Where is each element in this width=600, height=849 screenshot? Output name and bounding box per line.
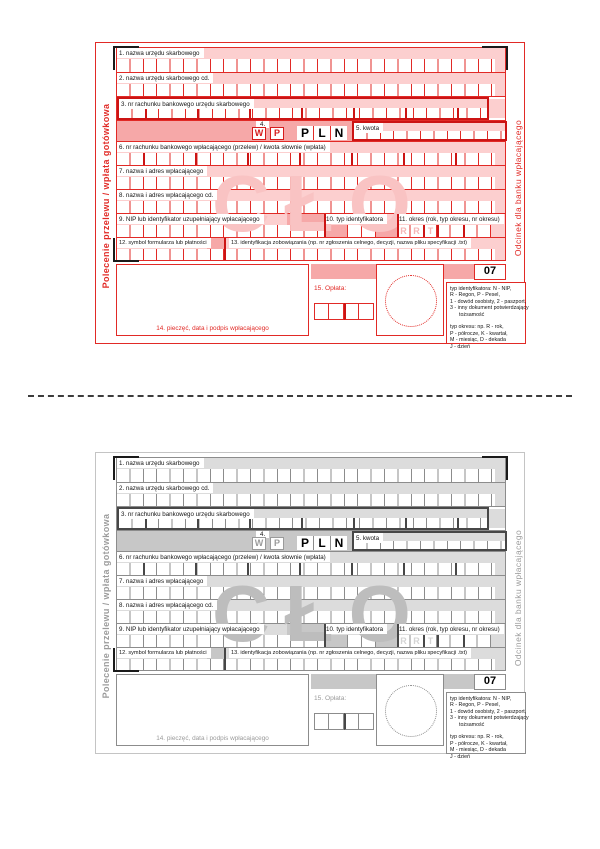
field-label: 11. okres (rok, typ okresu, nr okresu) xyxy=(397,214,504,224)
field-amount-box: 5. kwota xyxy=(352,531,507,551)
character-cells xyxy=(117,177,505,189)
period-hint-t: T xyxy=(424,226,437,236)
field-label: 10. typ identyfikatora xyxy=(324,214,387,224)
character-cells xyxy=(117,59,505,72)
character-cells xyxy=(117,587,505,599)
bank-stamp-box xyxy=(376,674,444,746)
transfer-type-box-p: P xyxy=(270,537,284,550)
field-label: 13. identyfikacja zobowiązania (np. nr z… xyxy=(229,238,471,248)
character-cells: R R T xyxy=(397,225,505,237)
form-type-vertical-label: Polecenie przelewu / wpłata gotówkowa xyxy=(101,506,111,706)
field-row-form-symbol-and-liability: 12. symbol formularza lub płatności 13. … xyxy=(117,647,505,670)
field-label: 2. nazwa urzędu skarbowego cd. xyxy=(117,483,213,493)
period-hint-r2: R xyxy=(410,226,423,236)
character-cells xyxy=(117,201,505,213)
character-cells xyxy=(117,563,505,575)
bank-stamp-box xyxy=(376,264,444,336)
form-variant-badge: 07 xyxy=(474,264,506,280)
field-row-transfer-type-and-amount: 4. W P PLN 5. kwota xyxy=(117,120,505,141)
character-cells xyxy=(117,494,505,506)
stamp-date-signature-box: 14. pieczęć, data i podpis wpłacającego xyxy=(116,674,309,746)
fee-cells xyxy=(314,713,374,730)
field-label: 6. nr rachunku bankowego wpłacającego (p… xyxy=(117,552,330,562)
field-row-payer-name-address-cont: 8. nazwa i adres wpłacającego cd. xyxy=(117,599,505,623)
page: { "form": { "side_left": "Polecenie prze… xyxy=(0,0,600,849)
field-row-payer-name-address: 7. nazwa i adres wpłacającego xyxy=(117,165,505,189)
character-cells xyxy=(119,518,487,528)
field-row-payer-account-or-amount-words: 6. nr rachunku bankowego wpłacającego (p… xyxy=(117,551,505,575)
character-cells xyxy=(117,84,505,96)
bank-copy-vertical-label: Odcinek dla banku wpłacającego xyxy=(513,498,523,698)
character-cells xyxy=(117,611,505,623)
field-label: 9. NIP lub identyfikator uzupełniający w… xyxy=(117,214,264,224)
stamp-circle xyxy=(385,685,437,737)
character-cells xyxy=(117,469,505,482)
corner-mark-top-left xyxy=(113,456,139,480)
field-label: 3. nr rachunku bankowego urzędu skarbowe… xyxy=(119,509,254,519)
character-cells xyxy=(117,153,505,165)
character-cells xyxy=(117,249,505,260)
corner-mark-top-left xyxy=(113,46,139,70)
field-row-tax-office-name: 1. nazwa urzędu skarbowego xyxy=(117,458,505,482)
field-label: 8. nazwa i adres wpłacającego cd. xyxy=(117,190,217,200)
perforation-line xyxy=(28,395,572,397)
field-label: 3. nr rachunku bankowego urzędu skarbowe… xyxy=(119,99,254,109)
field-period: 11. okres (rok, typ okresu, nr okresu) R… xyxy=(397,624,505,647)
legend-box: typ identyfikatora: N - NIP, R - Regon, … xyxy=(446,692,526,754)
transfer-type-box-p: P xyxy=(270,127,284,140)
field-label: 2. nazwa urzędu skarbowego cd. xyxy=(117,73,213,83)
currency-code: PLN xyxy=(297,126,347,140)
field-nip: 9. NIP lub identyfikator uzupełniający w… xyxy=(117,214,324,237)
field-id-type: 10. typ identyfikatora xyxy=(324,624,397,647)
field-row-transfer-type-and-amount: 4. W P PLN 5. kwota xyxy=(117,530,505,551)
character-cells xyxy=(324,635,397,647)
field-row-tax-office-account: 3. nr rachunku bankowego urzędu skarbowe… xyxy=(117,506,505,530)
transfer-type-box-w: W xyxy=(252,537,266,550)
fee-label: 15. Opłata: xyxy=(314,695,346,702)
field-row-nip-idtype-period: 9. NIP lub identyfikator uzupełniający w… xyxy=(117,213,505,237)
field-label: 14. pieczęć, data i podpis wpłacającego xyxy=(117,735,308,742)
field-amount-box: 5. kwota xyxy=(352,121,507,141)
currency-code: PLN xyxy=(297,536,347,550)
character-cells xyxy=(117,659,505,670)
corner-mark-bottom-left xyxy=(113,238,139,262)
stamp-circle xyxy=(385,275,437,327)
corner-mark-top-right xyxy=(482,456,508,480)
field-label: 5. kwota xyxy=(354,533,383,543)
fee-cells xyxy=(314,303,374,320)
character-cells xyxy=(117,225,324,237)
field-nip: 9. NIP lub identyfikator uzupełniający w… xyxy=(117,624,324,647)
stamp-date-signature-box: 14. pieczęć, data i podpis wpłacającego xyxy=(116,264,309,336)
field-row-tax-office-name-cont: 2. nazwa urzędu skarbowego cd. xyxy=(117,72,505,96)
transfer-type-box-w: W xyxy=(252,127,266,140)
customs-payment-form-red-copy: Polecenie przelewu / wpłata gotówkowa Od… xyxy=(95,42,525,344)
form-grid: 1. nazwa urzędu skarbowego 2. nazwa urzę… xyxy=(116,47,506,261)
field-row-payer-account-or-amount-words: 6. nr rachunku bankowego wpłacającego (p… xyxy=(117,141,505,165)
character-cells xyxy=(117,635,324,647)
field-label: 9. NIP lub identyfikator uzupełniający w… xyxy=(117,624,264,634)
field-label: 14. pieczęć, data i podpis wpłacającego xyxy=(117,325,308,332)
form-type-vertical-label: Polecenie przelewu / wpłata gotówkowa xyxy=(101,96,111,296)
field-row-tax-office-name: 1. nazwa urzędu skarbowego xyxy=(117,48,505,72)
field-label: 13. identyfikacja zobowiązania (np. nr z… xyxy=(229,648,471,658)
character-cells: R R T xyxy=(397,635,505,647)
form-grid: 1. nazwa urzędu skarbowego 2. nazwa urzę… xyxy=(116,457,506,671)
field-label: 7. nazwa i adres wpłacającego xyxy=(117,576,207,586)
customs-payment-form-gray-copy: Polecenie przelewu / wpłata gotówkowa Od… xyxy=(95,452,525,754)
field-row-tax-office-account: 3. nr rachunku bankowego urzędu skarbowe… xyxy=(117,96,505,120)
form-variant-badge: 07 xyxy=(474,674,506,690)
field-label: 10. typ identyfikatora xyxy=(324,624,387,634)
period-hint-r2: R xyxy=(410,636,423,646)
corner-mark-bottom-left xyxy=(113,648,139,672)
field-row-payer-name-address: 7. nazwa i adres wpłacającego xyxy=(117,575,505,599)
fee-label: 15. Opłata: xyxy=(314,285,346,292)
field-row-payer-name-address-cont: 8. nazwa i adres wpłacającego cd. xyxy=(117,189,505,213)
field-label: 5. kwota xyxy=(354,123,383,133)
field-row-tax-office-name-cont: 2. nazwa urzędu skarbowego cd. xyxy=(117,482,505,506)
field-label: 7. nazwa i adres wpłacającego xyxy=(117,166,207,176)
period-hint-t: T xyxy=(424,636,437,646)
corner-mark-top-right xyxy=(482,46,508,70)
field-id-type: 10. typ identyfikatora xyxy=(324,214,397,237)
field-period: 11. okres (rok, typ okresu, nr okresu) R… xyxy=(397,214,505,237)
bank-copy-vertical-label: Odcinek dla banku wpłacającego xyxy=(513,88,523,288)
field-label: 8. nazwa i adres wpłacającego cd. xyxy=(117,600,217,610)
field-label: 11. okres (rok, typ okresu, nr okresu) xyxy=(397,624,504,634)
field-row-form-symbol-and-liability: 12. symbol formularza lub płatności 13. … xyxy=(117,237,505,260)
field-label: 6. nr rachunku bankowego wpłacającego (p… xyxy=(117,142,330,152)
legend-box: typ identyfikatora: N - NIP, R - Regon, … xyxy=(446,282,526,344)
field-row-nip-idtype-period: 9. NIP lub identyfikator uzupełniający w… xyxy=(117,623,505,647)
character-cells xyxy=(324,225,397,237)
character-cells xyxy=(119,108,487,118)
